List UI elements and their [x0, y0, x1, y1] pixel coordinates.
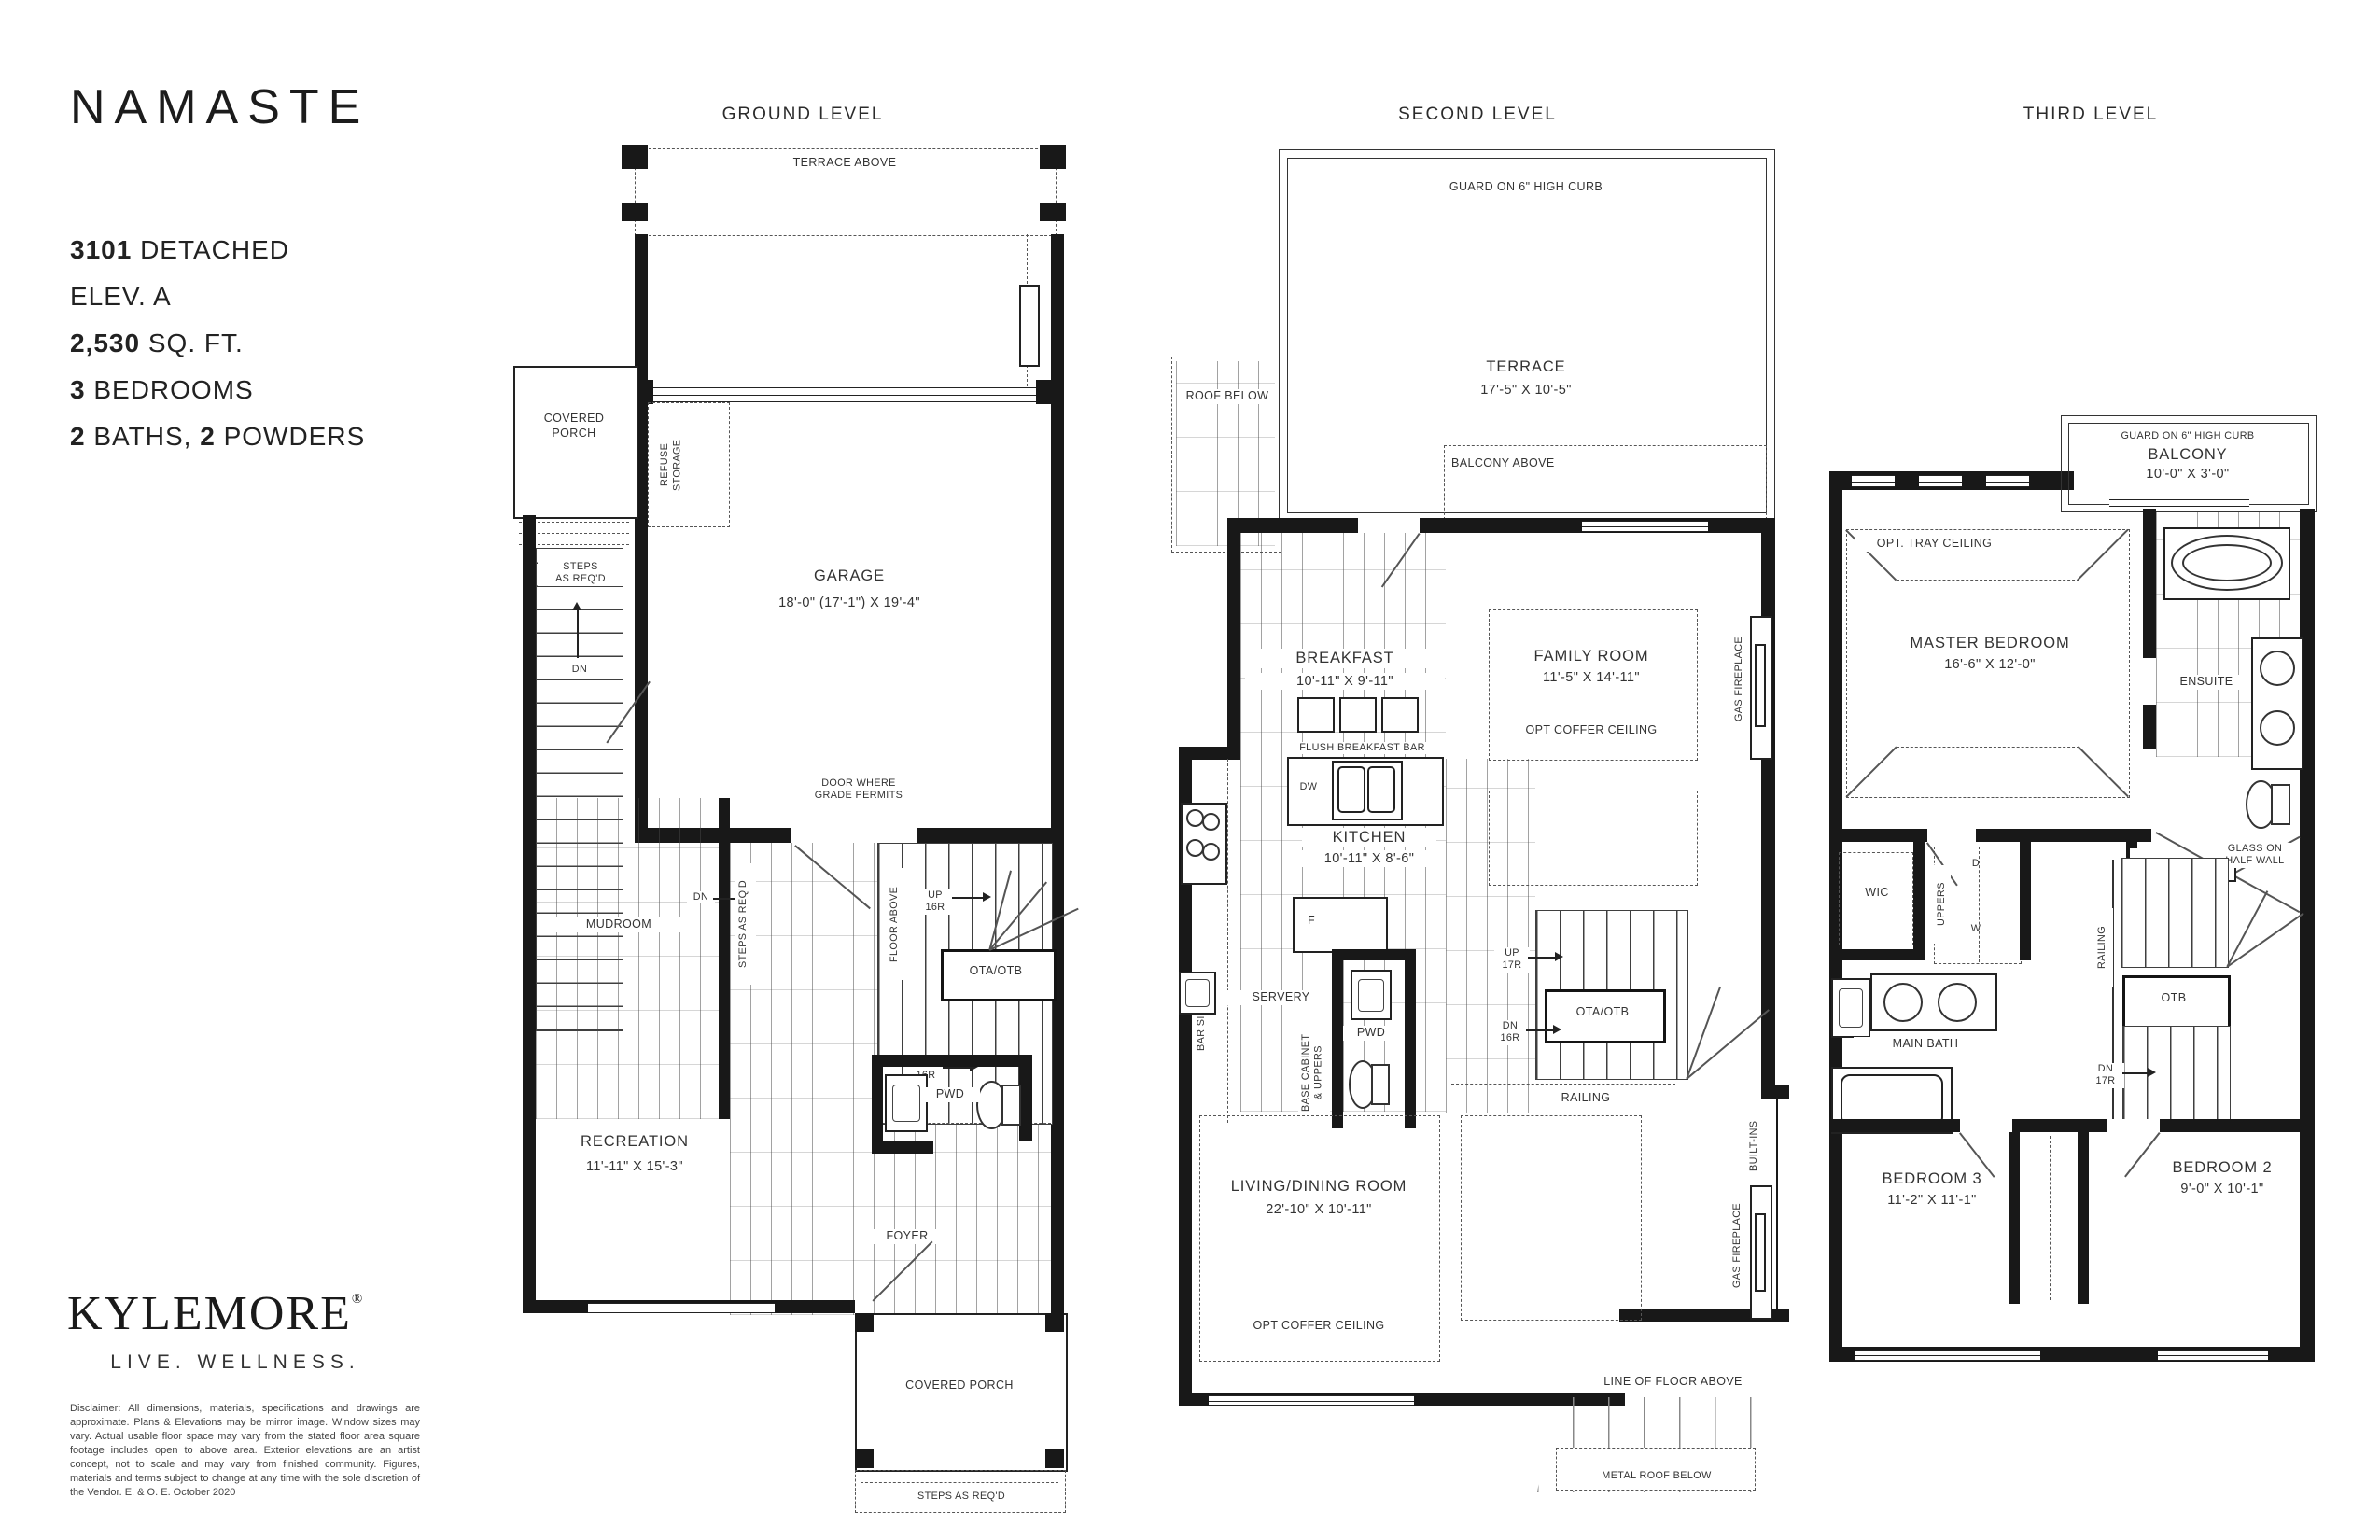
toilet-icon	[976, 1076, 1021, 1130]
label-guard-curb-third: GUARD ON 6" HIGH CURB	[2074, 430, 2302, 442]
label-roof-below: ROOF BELOW	[1177, 389, 1278, 404]
burner-icon	[1186, 839, 1204, 857]
sqft-number: 2,530	[70, 329, 140, 357]
brand-logo: KYLEMORE®	[67, 1286, 362, 1341]
label-breakfast: BREAKFAST	[1250, 649, 1440, 668]
bedrooms-number: 3	[70, 375, 86, 404]
wall	[1045, 1313, 1064, 1332]
sitting-area-outline	[1461, 1115, 1642, 1321]
burner-icon	[1186, 809, 1204, 827]
wall	[855, 1313, 874, 1332]
label-kitchen: KITCHEN	[1302, 828, 1436, 847]
wall	[1019, 1067, 1032, 1141]
page: NAMASTE 3101 DETACHED ELEV. A 2,530 SQ. …	[0, 0, 2380, 1540]
wall	[622, 145, 648, 169]
powders-number: 2	[200, 422, 216, 451]
label-living-opt-coffer: OPT COFFER CEILING	[1230, 1319, 1407, 1334]
wall	[622, 203, 648, 221]
wall	[1405, 949, 1416, 1128]
wall	[1829, 1119, 2315, 1132]
sqft-label: SQ. FT.	[148, 329, 244, 357]
window	[1986, 475, 2029, 487]
label-built-ins: BUILT-INS	[1746, 1106, 1765, 1185]
brand-tagline: LIVE. WELLNESS.	[67, 1351, 403, 1374]
label-recreation-dims: 11'-11" X 15'-3"	[541, 1158, 728, 1175]
wall	[719, 798, 730, 1119]
disclaimer-text: Disclaimer: All dimensions, materials, s…	[70, 1402, 420, 1500]
label-dn-mid: DN	[687, 891, 715, 903]
label-railing-third: RAILING	[2094, 908, 2113, 987]
label-kitchen-dims: 10'-11" X 8'-6"	[1293, 850, 1446, 867]
label-gas-fireplace-bottom: GAS FIREPLACE	[1729, 1192, 1748, 1299]
label-main-bath: MAIN BATH	[1854, 1037, 1997, 1052]
wall	[872, 1141, 933, 1154]
label-balcony-dims: 10'-0" X 3'-0"	[2107, 466, 2268, 483]
wall	[1761, 1085, 1789, 1099]
wall	[2009, 1132, 2020, 1304]
label-uppers: UPPERS	[1934, 865, 1951, 944]
label-family-opt-coffer: OPT COFFER CEILING	[1503, 723, 1680, 738]
label-living-dining-dims: 22'-10" X 10'-11"	[1216, 1201, 1421, 1218]
floor-hatch	[536, 798, 719, 1119]
sink-icon	[1883, 983, 1923, 1022]
baths-line: 2 BATHS, 2 POWDERS	[70, 422, 365, 452]
label-pwd: PWD	[920, 1087, 980, 1102]
stool-icon	[1297, 697, 1335, 733]
direction-arrow-icon	[1526, 1029, 1554, 1031]
label-balcony: BALCONY	[2107, 445, 2268, 465]
sink-icon	[2260, 710, 2295, 746]
window	[1582, 521, 1708, 532]
label-steps-as-reqd: STEPS AS REQ'D	[538, 561, 623, 586]
wall	[1040, 145, 1066, 169]
sink-basin	[1337, 766, 1365, 813]
window	[2109, 499, 2249, 511]
label-family-room: FAMILY ROOM	[1498, 647, 1685, 666]
closet-line	[2050, 1136, 2051, 1300]
wall	[2143, 509, 2156, 658]
label-dn: DN	[564, 664, 595, 676]
label-flush-breakfast-bar: FLUSH BREAKFAST BAR	[1283, 742, 1441, 754]
label-dryer: D	[1967, 858, 1984, 870]
direction-arrow-icon	[952, 897, 984, 899]
wall	[1913, 842, 1925, 960]
toilet-icon	[1349, 1056, 1390, 1110]
label-ota-otb-second: OTA/OTB	[1545, 1005, 1660, 1020]
door-opening	[1358, 518, 1420, 533]
window	[1019, 285, 1040, 367]
wall-above-line	[665, 234, 665, 400]
label-ota-otb: OTA/OTB	[941, 964, 1051, 979]
wall	[1051, 234, 1064, 1315]
stair-winder-line	[2227, 913, 2304, 968]
label-servery: SERVERY	[1225, 990, 1337, 1005]
label-dn-17r: DN 17R	[2087, 1063, 2124, 1088]
counter-line	[1227, 759, 1228, 1123]
toilet-tank	[1371, 1064, 1390, 1104]
label-terrace-above: TERRACE ABOVE	[635, 156, 1055, 171]
door-opening	[2107, 1119, 2160, 1132]
label-bedroom-2: BEDROOM 2	[2143, 1158, 2302, 1178]
family-opt-outline	[1489, 791, 1698, 886]
stool-icon	[1381, 697, 1419, 733]
label-mudroom: MUDROOM	[547, 917, 691, 932]
ground-level-plan: TERRACE ABOVE REFUSE STORAGE GARAGE 18'-…	[495, 145, 1111, 1512]
label-covered-porch: COVERED PORCH	[515, 412, 633, 441]
fireplace-icon-inner	[1755, 644, 1766, 727]
label-pwd-second: PWD	[1343, 1026, 1399, 1041]
second-level-plan: GUARD ON 6" HIGH CURB TERRACE 17'-5" X 1…	[1171, 145, 1778, 1507]
wall	[1045, 1449, 1064, 1468]
wall	[1829, 949, 1925, 960]
direction-arrow-icon	[943, 1067, 971, 1069]
header-third-level: THIRD LEVEL	[1969, 105, 2212, 125]
window	[1919, 475, 1962, 487]
window	[588, 1303, 775, 1313]
label-breakfast-dims: 10'-11" X 9'-11"	[1245, 673, 1445, 690]
label-washer: W	[1967, 923, 1984, 935]
metal-roof-outline	[1556, 1448, 1756, 1491]
closet-line	[1979, 847, 1980, 962]
baths-label: BATHS,	[93, 422, 191, 451]
powders-label: POWDERS	[224, 422, 366, 451]
label-steps-bottom: STEPS AS REQ'D	[887, 1491, 1036, 1503]
label-terrace: TERRACE	[1405, 357, 1647, 377]
wall	[855, 1449, 874, 1468]
label-covered-porch-bottom: COVERED PORCH	[864, 1379, 1055, 1393]
toilet-icon	[2246, 776, 2290, 830]
wall	[2078, 1132, 2089, 1304]
label-refuse-storage: REFUSE STORAGE	[659, 412, 693, 518]
direction-arrow-icon	[2122, 1072, 2149, 1074]
stool-icon	[1339, 697, 1377, 733]
wall	[1036, 380, 1051, 404]
model-line: 3101 DETACHED	[70, 235, 289, 265]
label-bedroom-3-dims: 11'-2" X 11'-1"	[1857, 1192, 2007, 1209]
stairs	[2122, 1026, 2231, 1127]
wall	[872, 1055, 1032, 1067]
stair-winder-line	[2226, 890, 2268, 967]
bar-sink-icon	[1179, 972, 1216, 1015]
wall	[1332, 949, 1416, 960]
label-recreation: RECREATION	[541, 1132, 728, 1152]
burner-icon	[1202, 813, 1220, 831]
label-bedroom-3: BEDROOM 3	[1853, 1169, 2011, 1189]
window	[1852, 475, 1895, 487]
wall	[1829, 829, 2151, 842]
model-number: 3101	[70, 235, 132, 264]
wall	[2143, 705, 2156, 749]
window	[1209, 1395, 1414, 1406]
label-otb: OTB	[2122, 991, 2225, 1006]
label-dn-16r-second: DN 16R	[1492, 1020, 1528, 1045]
tub-basin-inner	[2182, 544, 2272, 581]
label-living-dining: LIVING/DINING ROOM	[1207, 1177, 1431, 1197]
window	[1855, 1350, 2040, 1361]
wall	[1761, 518, 1775, 1099]
wall	[1776, 1085, 1778, 1322]
model-type: DETACHED	[140, 235, 289, 264]
sink-basin	[1367, 766, 1395, 813]
label-wic: WIC	[1846, 886, 1908, 901]
steps-line	[861, 1482, 1058, 1483]
label-up-16r: UP 16R	[917, 889, 954, 915]
toilet-tank	[1001, 1085, 1021, 1125]
wall	[2300, 509, 2315, 1360]
toilet-tank	[2271, 784, 2290, 824]
label-bedroom-2-dims: 9'-0" X 10'-1"	[2148, 1181, 2297, 1197]
wall	[872, 1055, 883, 1154]
label-garage-dims: 18'-0" (17'-1") X 19'-4"	[700, 595, 999, 611]
direction-arrow-icon	[1528, 957, 1556, 959]
label-line-of-floor-above: LINE OF FLOOR ABOVE	[1571, 1375, 1775, 1390]
label-foyer: FOYER	[864, 1229, 950, 1244]
sink-icon	[885, 1074, 928, 1132]
toilet-icon	[1831, 978, 1870, 1038]
label-up-17r: UP 17R	[1494, 947, 1530, 973]
fireplace-icon-inner	[1755, 1213, 1766, 1292]
up-arrow-icon	[577, 609, 579, 658]
header-second-level: SECOND LEVEL	[1356, 105, 1599, 125]
page-title: NAMASTE	[70, 79, 370, 135]
label-door-where-grade-permits: DOOR WHERE GRADE PERMITS	[775, 777, 943, 803]
label-guard-curb: GUARD ON 6" HIGH CURB	[1330, 180, 1722, 195]
elevation-line: ELEV. A	[70, 282, 172, 312]
wall	[1332, 949, 1343, 1128]
railing-line	[1451, 1084, 1675, 1085]
header-ground-level: GROUND LEVEL	[681, 105, 924, 125]
label-master-bedroom-dims: 16'-6" X 12'-0"	[1904, 656, 2076, 673]
wall	[2020, 842, 2031, 960]
bedrooms-line: 3 BEDROOMS	[70, 375, 254, 405]
label-railing: RAILING	[1537, 1091, 1634, 1106]
window	[648, 387, 1051, 402]
burner-icon	[1202, 843, 1220, 861]
wall	[523, 515, 536, 1313]
label-steps-as-reqd-vertical: STEPS AS REQ'D	[735, 863, 756, 985]
wall	[1227, 518, 1240, 759]
label-master-bedroom: MASTER BEDROOM	[1895, 634, 2085, 653]
label-fridge: F	[1300, 914, 1323, 929]
label-opt-tray-ceiling: OPT. TRAY CEILING	[1855, 537, 2013, 552]
label-terrace-dims: 17'-5" X 10'-5"	[1405, 382, 1647, 399]
third-level-plan: GUARD ON 6" HIGH CURB BALCONY 10'-0" X 3…	[1829, 145, 2380, 1386]
bedrooms-label: BEDROOMS	[93, 375, 253, 404]
wall	[917, 828, 1064, 843]
door-opening	[1927, 829, 1976, 842]
label-family-room-dims: 11'-5" X 14'-11"	[1498, 669, 1685, 686]
window	[2158, 1350, 2268, 1361]
covered-porch-outline	[513, 366, 638, 519]
sqft-line: 2,530 SQ. FT.	[70, 329, 244, 358]
door-opening	[1960, 1119, 2012, 1132]
stairs	[2121, 858, 2229, 968]
label-ensuite: ENSUITE	[2162, 675, 2251, 690]
label-garage: GARAGE	[709, 567, 989, 586]
registered-mark: ®	[352, 1292, 362, 1307]
sink-icon	[1351, 970, 1392, 1020]
sink-icon	[2260, 651, 2295, 686]
baths-number: 2	[70, 422, 86, 451]
wall	[1040, 203, 1066, 221]
label-gas-fireplace-top: GAS FIREPLACE	[1731, 625, 1750, 733]
label-floor-above: FLOOR ABOVE	[887, 868, 907, 980]
sink-icon	[1938, 983, 1977, 1022]
brand-name: KYLEMORE	[67, 1287, 352, 1340]
label-dw: DW	[1295, 781, 1323, 793]
label-balcony-above: BALCONY ABOVE	[1451, 456, 1610, 471]
label-metal-roof-below: METAL ROOF BELOW	[1589, 1470, 1724, 1482]
